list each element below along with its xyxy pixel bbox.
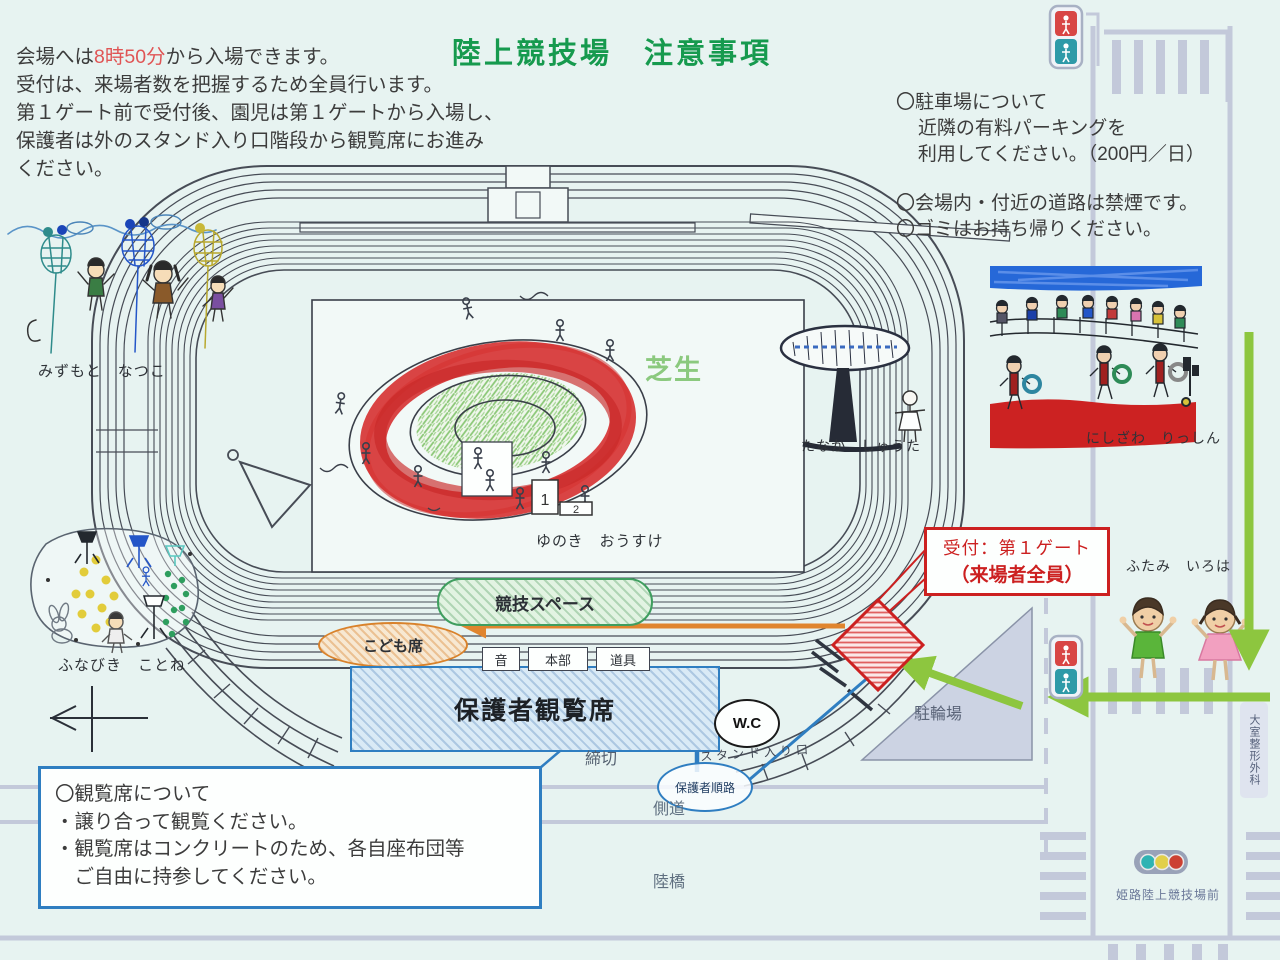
side-road-label: 側道 [653, 795, 685, 819]
artist-caption-mizumoto: みずもと なつこ [38, 360, 166, 381]
reception-callout: 受付：第１ゲート （来場者全員） [924, 527, 1110, 596]
drawing-nishizawa [990, 266, 1202, 448]
pedestrian-signal-icon [1050, 636, 1082, 698]
entry-time: 8時50分 [94, 46, 166, 68]
reception-line-1: 受付：第１ゲート [931, 535, 1103, 560]
artist-caption-tanaka: たなか しゅうた [801, 436, 921, 456]
sound-booth-box: 音 [482, 647, 520, 671]
lawn-label: 芝生 [645, 348, 703, 387]
stadium-notice-flyer: 1 2 [0, 0, 1280, 960]
bus-stop-label: 姫路陸上競技場前 [1116, 886, 1220, 903]
intro-line-2: 受付は、来場者数を把握するため全員行います。 [16, 72, 504, 100]
right-notes: 〇駐車場について 近隣の有料パーキングを 利用してください。（200円／日） 〇… [896, 90, 1205, 243]
equipment-box: 道具 [596, 647, 650, 671]
artist-caption-nishizawa: にしざわ りっしん [1086, 428, 1221, 448]
kids-seats-zone: こども席 [318, 622, 468, 668]
overpass-label: 陸橋 [653, 868, 685, 892]
pedestrian-signal-icon [1050, 6, 1082, 68]
traffic-light-icon [1134, 850, 1188, 874]
intro-line-3: 第１ゲート前で受付後、園児は第１ゲートから入場し、 [16, 100, 504, 128]
parking-note-title: 〇駐車場について [896, 90, 1205, 116]
compass-icon [50, 686, 148, 752]
seating-note-line: ・観覧席はコンクリートのため、各自座布団等 [55, 836, 525, 864]
reception-line-2: （来場者全員） [931, 560, 1103, 587]
competition-space-zone: 競技スペース [437, 578, 653, 626]
intro-line-5: ください。 [16, 156, 504, 184]
artist-caption-futami: ふたみ いろは [1126, 556, 1231, 576]
intro-line-4: 保護者は外のスタンド入り口階段から観覧席にお進み [16, 128, 504, 156]
seating-note-line: ご自由に持参してください。 [55, 864, 525, 892]
entry-instructions: 会場へは8時50分から入場できます。 受付は、来場者数を把握するため全員行います… [16, 44, 504, 183]
no-smoking-note: 〇会場内・付近の道路は禁煙です。 [896, 191, 1205, 217]
seating-note-line: ・譲り合って観覧ください。 [55, 809, 525, 837]
parking-note-line: 利用してください。（200円／日） [896, 142, 1205, 168]
parking-note-line: 近隣の有料パーキングを [896, 116, 1205, 142]
bicycle-parking-label: 駐輪場 [914, 700, 962, 724]
intro-line-1: 会場へは8時50分から入場できます。 [16, 44, 504, 72]
artist-caption-funabiki: ふなびき ことね [58, 654, 186, 675]
drawing-funabiki [31, 529, 198, 653]
garbage-note: 〇ゴミはお持ち帰りください。 [896, 217, 1205, 243]
wc-label: W.C [714, 699, 780, 748]
clinic-label: 大室整形外科 [1240, 702, 1268, 798]
seating-notes-box: 〇観覧席について ・譲り合って観覧ください。 ・観覧席はコンクリートのため、各自… [38, 766, 542, 909]
podium-number-1: 1 [541, 492, 550, 509]
headquarters-box: 本部 [528, 647, 588, 671]
podium-number-2: 2 [573, 504, 579, 516]
closed-label: 締切 [585, 745, 617, 769]
guardian-seats-zone: 保護者観覧席 [350, 666, 720, 752]
artist-caption-yunoki: ゆのき おうすけ [536, 530, 664, 551]
seating-note-title: 〇観覧席について [55, 781, 525, 809]
